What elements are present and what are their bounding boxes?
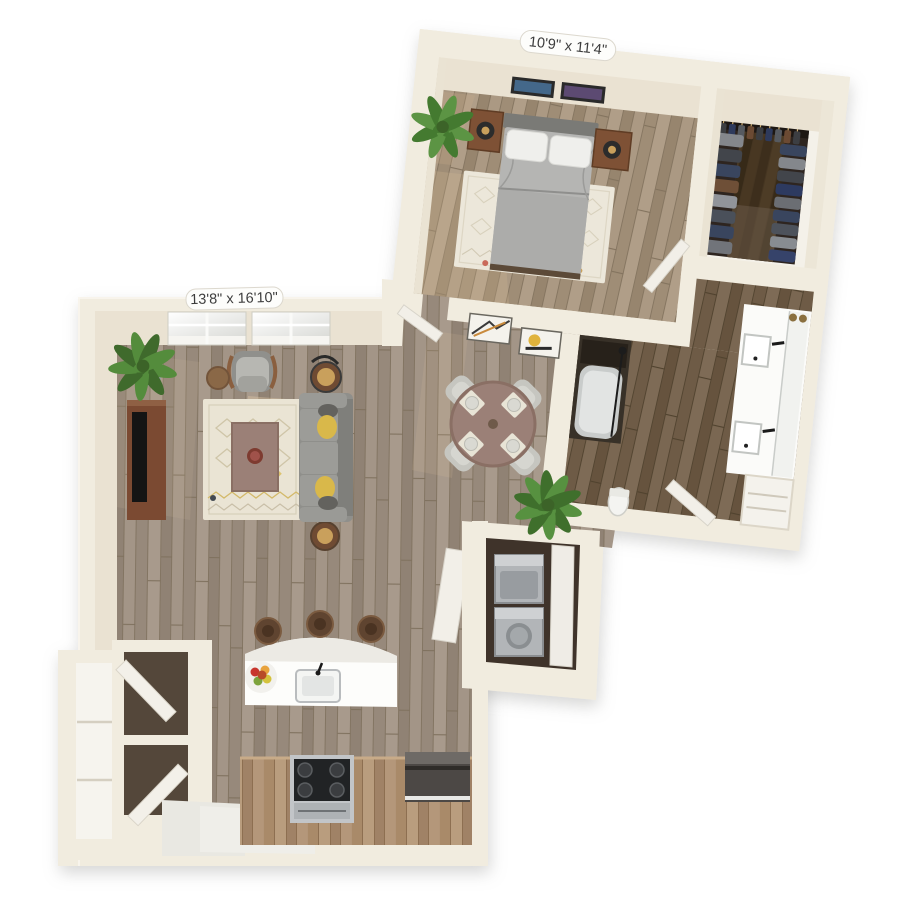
- svg-text:13'8" x 16'10": 13'8" x 16'10": [190, 290, 278, 308]
